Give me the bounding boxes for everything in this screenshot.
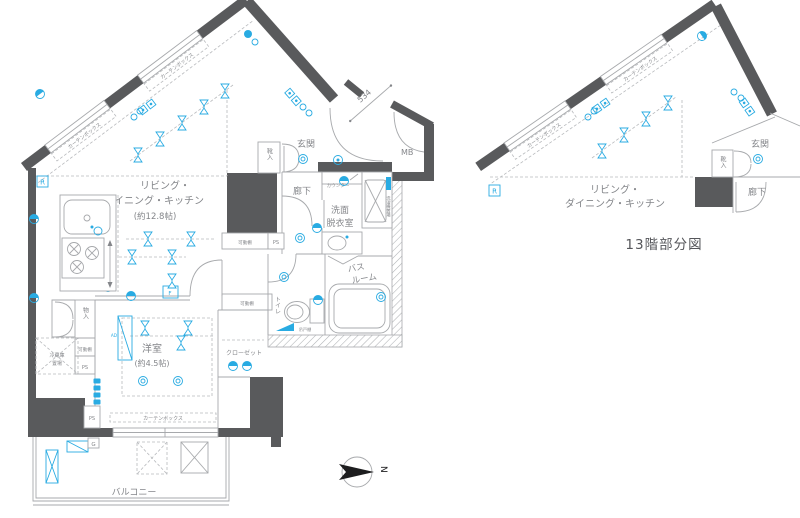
wall-light-icon — [696, 30, 709, 43]
spotlight-icon — [144, 232, 152, 246]
switch-icon — [94, 400, 101, 405]
spotlight-icon — [620, 128, 628, 142]
pipe-space-label: PS — [89, 416, 95, 422]
bedroom-size-label: (約4.5帖) — [135, 358, 170, 368]
downlight-icon — [299, 155, 308, 164]
spotlight-icon — [141, 321, 149, 335]
movable-shelf-label: 可動棚 — [238, 239, 252, 246]
sensor-icon — [244, 30, 252, 38]
hallway-label: 廊下 — [748, 186, 766, 198]
storage-door-arc — [55, 320, 73, 337]
entrance-label: 玄関 — [751, 138, 769, 150]
wall-light-icon — [34, 88, 47, 101]
spotlight-icon — [168, 274, 176, 288]
ldk-label-2: ダイニング・キッチン — [565, 197, 665, 210]
speaker-icon — [285, 88, 301, 105]
r-mark-label: R — [492, 188, 497, 196]
bedroom-label: 洋室 — [142, 342, 162, 355]
air-duct-label: AD — [111, 333, 117, 338]
ldk-label-1: リビング・ — [590, 183, 640, 196]
closet-label: クローゼット — [226, 349, 262, 357]
floor-plan-page: カーテンボックス カーテンボックス — [0, 0, 800, 518]
closet: クローゼット — [222, 340, 264, 371]
wall-light-icon — [229, 362, 238, 371]
toilet-label: トイレ — [274, 296, 281, 314]
speaker-icon — [592, 98, 610, 113]
balcony-label: バルコニー — [112, 487, 157, 498]
storage-door-arc — [55, 302, 73, 319]
spotlight-icon — [134, 148, 142, 162]
corner-pillar — [250, 377, 283, 429]
storage-label: 物入 — [82, 306, 89, 319]
hallway-label: 廊下 — [293, 185, 311, 197]
partial-floor-plan: カーテンボックス カーテンボックス R リビング・ ダイニング・キッチン 靴入 — [475, 0, 800, 253]
spotlight-icon — [156, 132, 164, 146]
compass-north-label: N — [378, 466, 388, 473]
hanging-cabinet-label: 吊戸棚 — [299, 326, 312, 333]
meter-box-label: MB — [401, 148, 413, 157]
floor-plan-drawing: カーテンボックス カーテンボックス — [0, 0, 800, 518]
bathroom: バス ルーム — [329, 260, 390, 333]
storage-box — [75, 300, 95, 338]
g-mark-label: G — [91, 442, 95, 448]
downlight-icon — [139, 377, 148, 386]
doorbell-icon — [337, 159, 340, 162]
bathroom-label-1: バス — [347, 262, 365, 275]
washlet-mark — [276, 323, 294, 331]
spotlight-icon — [664, 96, 672, 110]
center-pillar — [227, 173, 277, 233]
fridge-label-2: 置場 — [52, 360, 62, 367]
washroom-label-2: 脱衣室 — [326, 217, 353, 229]
spotlight-icon — [642, 112, 650, 126]
pipe-space-label: PS — [273, 240, 279, 246]
spotlight-icon — [221, 84, 229, 98]
laundry-label: 洗濯機置場 — [386, 195, 392, 219]
floor-hatch-label: F — [168, 291, 171, 297]
fridge-label-1: 冷蔵庫 — [49, 352, 64, 359]
ldk-door-arc — [282, 196, 312, 226]
kitchen-counter — [60, 195, 116, 291]
spotlight-icon — [200, 100, 208, 114]
spotlight-icon — [184, 321, 192, 335]
wall-light-icon — [313, 224, 322, 233]
bedroom-door-arc — [190, 260, 222, 296]
ldk-size-label: (約12.8帖) — [134, 211, 177, 222]
compass-needle — [339, 464, 374, 480]
bedroom: 洋室 (約4.5帖) AD 可動棚 — [111, 294, 272, 396]
shoe-cabinet-door-arc — [282, 158, 299, 172]
spotlight-icon — [598, 144, 606, 158]
counter-label: カウンター — [327, 182, 350, 189]
pillar — [695, 177, 733, 207]
ldk-label-2: ダイニング・キッチン — [104, 194, 204, 207]
switch-icon — [94, 386, 101, 391]
shoe-cabinet-label: 靴入 — [719, 155, 726, 168]
pillar-shelf: 可動棚 PS — [222, 233, 284, 249]
pipe-space-label: PS — [82, 365, 88, 371]
downlight-icon — [296, 234, 305, 243]
downlight-icon — [174, 377, 183, 386]
switch-icon — [94, 379, 101, 384]
toilet-bowl — [285, 302, 310, 323]
curtain-box-label: カーテンボックス — [143, 415, 183, 422]
movable-shelf-label: 可動棚 — [240, 300, 254, 307]
speaker-icon — [138, 99, 156, 115]
movable-shelf-label: 可動棚 — [78, 346, 92, 353]
spotlight-icon — [177, 336, 185, 350]
kitchen — [60, 195, 214, 292]
r-mark-label: R — [40, 179, 45, 187]
spotlight-icon — [178, 116, 186, 130]
entrance-label: 玄関 — [297, 138, 315, 150]
compass: N — [339, 457, 388, 487]
wall-light-icon — [127, 292, 136, 301]
water-area: 廊下 カウンター 洗面 脱衣室 洗濯機置場 — [293, 172, 392, 254]
washroom-label-1: 洗面 — [331, 204, 349, 216]
switch-icon — [94, 393, 101, 398]
bathtub — [329, 284, 390, 333]
toilet-room: トイレ 吊戸棚 — [274, 273, 325, 334]
entrance-area: 靴入 玄関 534 MB — [258, 74, 413, 173]
wall-light-icon — [243, 362, 252, 371]
shoe-cabinet-label: 靴入 — [266, 147, 273, 160]
main-floor-plan: カーテンボックス カーテンボックス — [21, 0, 434, 505]
downlight-icon — [754, 155, 763, 164]
ldk-label-1: リビング・ — [140, 179, 190, 192]
partial-plan-caption: 13階部分図 — [625, 237, 702, 253]
